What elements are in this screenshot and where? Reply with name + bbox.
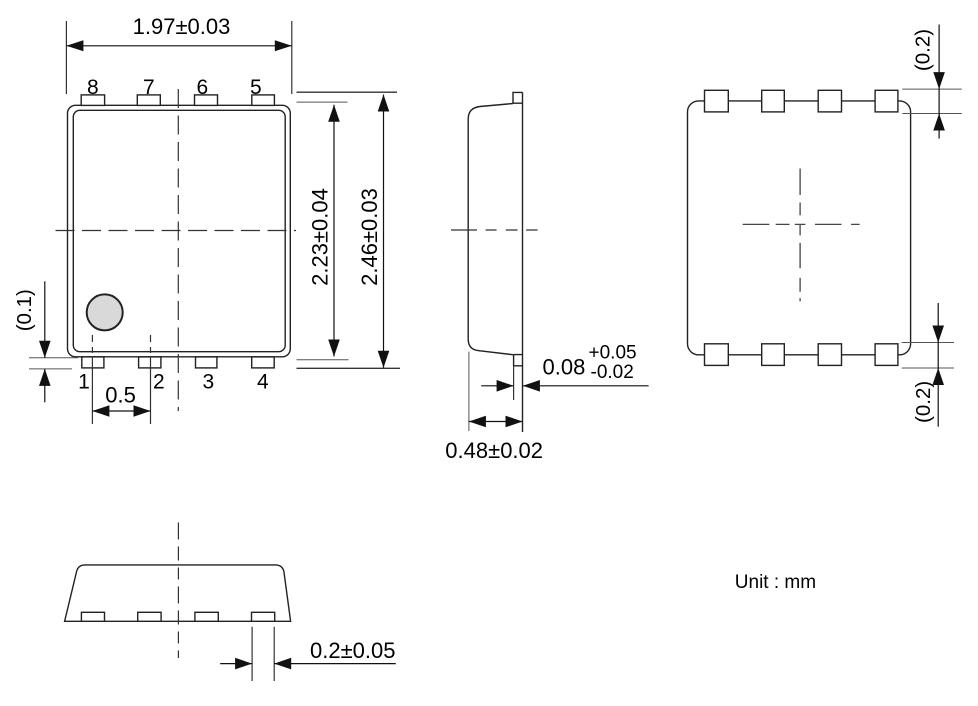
svg-text:2.23±0.04: 2.23±0.04 xyxy=(307,188,332,286)
svg-text:0.48±0.02: 0.48±0.02 xyxy=(445,438,543,463)
svg-text:2.46±0.03: 2.46±0.03 xyxy=(357,188,382,286)
svg-text:-0.02: -0.02 xyxy=(591,362,634,383)
svg-text:+0.05: +0.05 xyxy=(589,343,637,364)
svg-text:Unit : mm: Unit : mm xyxy=(735,572,816,593)
svg-text:3: 3 xyxy=(202,370,214,393)
svg-text:1: 1 xyxy=(78,370,90,393)
svg-text:2: 2 xyxy=(153,370,165,393)
svg-text:(0.2): (0.2) xyxy=(912,29,935,71)
svg-text:4: 4 xyxy=(257,370,269,393)
svg-text:0.08: 0.08 xyxy=(543,355,586,380)
svg-text:(0.2): (0.2) xyxy=(912,381,935,423)
svg-text:0.2±0.05: 0.2±0.05 xyxy=(310,638,395,663)
svg-text:1.97±0.03: 1.97±0.03 xyxy=(133,14,231,39)
svg-text:0.5: 0.5 xyxy=(105,382,136,407)
svg-text:(0.1): (0.1) xyxy=(13,289,36,331)
